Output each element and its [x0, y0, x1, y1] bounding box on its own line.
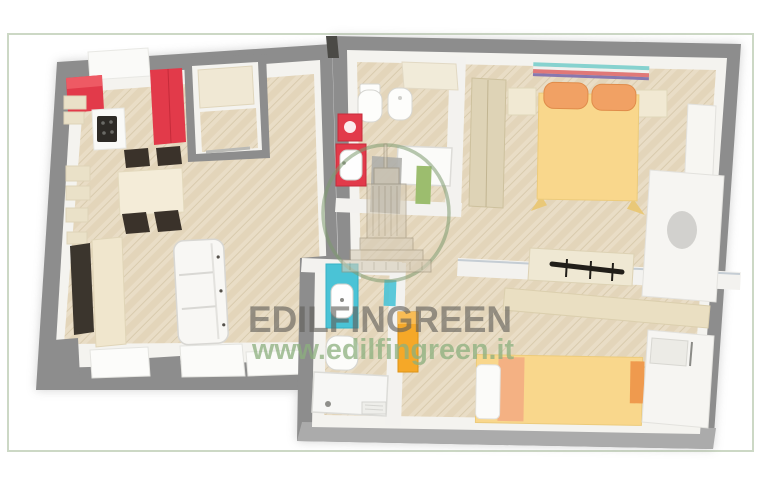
bidet [388, 88, 412, 120]
tv-panel [70, 243, 94, 335]
floor-plan-rendering: EDILFINGREEN www.edilfingreen.it [0, 0, 764, 492]
fridge-counter [88, 48, 150, 80]
nightstand-left [508, 88, 536, 115]
block-junction [326, 36, 339, 58]
sofa [173, 239, 228, 345]
watermark-website-text: www.edilfingreen.it [251, 334, 514, 366]
open-door [650, 338, 688, 366]
chair [122, 212, 150, 234]
green-mat [415, 166, 431, 205]
chair [154, 210, 182, 232]
built-in-wardrobe [198, 66, 254, 108]
sideboard [92, 237, 126, 347]
coat-rack [528, 248, 634, 286]
wardrobe-open [642, 330, 714, 428]
chair [156, 146, 182, 166]
wardrobe-with-oval-mirror [642, 170, 724, 302]
pillow [592, 84, 636, 111]
double-bed [531, 82, 647, 215]
oval-mirror [667, 211, 697, 249]
nightstand-right [636, 90, 667, 117]
shower-tray [312, 372, 388, 416]
cooktop [97, 116, 117, 142]
bath-shelf [402, 62, 458, 90]
pillow [544, 82, 588, 109]
chair [124, 148, 150, 168]
dining-table [118, 168, 184, 216]
storage-closet [184, 54, 270, 162]
pillow [475, 365, 500, 419]
floor-plan-photo: EDILFINGREEN www.edilfingreen.it [0, 0, 764, 492]
